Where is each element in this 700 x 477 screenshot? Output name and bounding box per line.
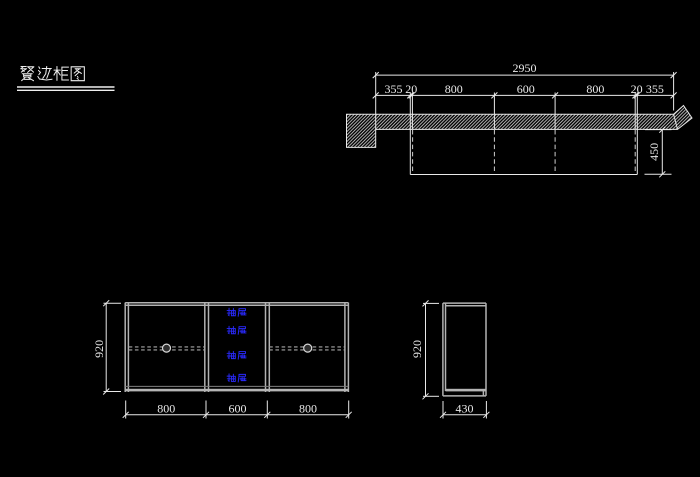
svg-text:355: 355 [646, 82, 664, 96]
svg-text:920: 920 [410, 340, 424, 358]
svg-text:2950: 2950 [513, 61, 537, 75]
svg-text:800: 800 [299, 401, 317, 415]
svg-text:20: 20 [405, 82, 417, 96]
svg-text:920: 920 [92, 340, 106, 358]
svg-text:355: 355 [385, 82, 403, 96]
svg-text:800: 800 [445, 82, 463, 96]
svg-text:20: 20 [631, 82, 643, 96]
svg-text:600: 600 [229, 401, 247, 415]
svg-text:600: 600 [517, 82, 535, 96]
svg-text:450: 450 [647, 143, 661, 161]
svg-text:430: 430 [456, 401, 474, 415]
svg-text:800: 800 [157, 401, 175, 415]
svg-text:800: 800 [586, 82, 604, 96]
